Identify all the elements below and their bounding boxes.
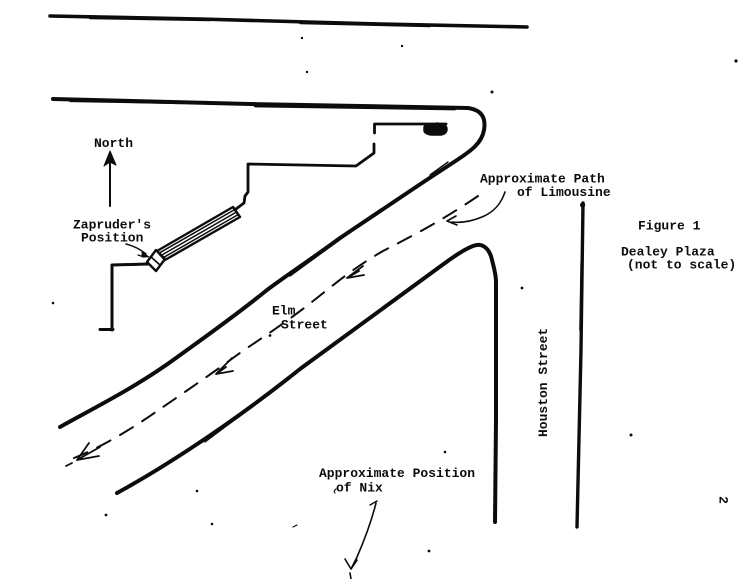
svg-text:North: North (94, 136, 133, 151)
svg-text:of Limousine: of Limousine (517, 185, 611, 200)
svg-text:of Nix: of Nix (336, 481, 383, 496)
svg-text:Street: Street (281, 318, 328, 333)
svg-text:2: 2 (716, 496, 731, 504)
svg-text:Elm: Elm (272, 304, 296, 319)
svg-text:Position: Position (81, 231, 144, 246)
svg-text:Figure 1: Figure 1 (638, 219, 701, 234)
svg-text:Approximate Position: Approximate Position (319, 466, 475, 481)
svg-text:(not to scale): (not to scale) (627, 258, 736, 273)
svg-text:Houston Street: Houston Street (536, 328, 551, 437)
